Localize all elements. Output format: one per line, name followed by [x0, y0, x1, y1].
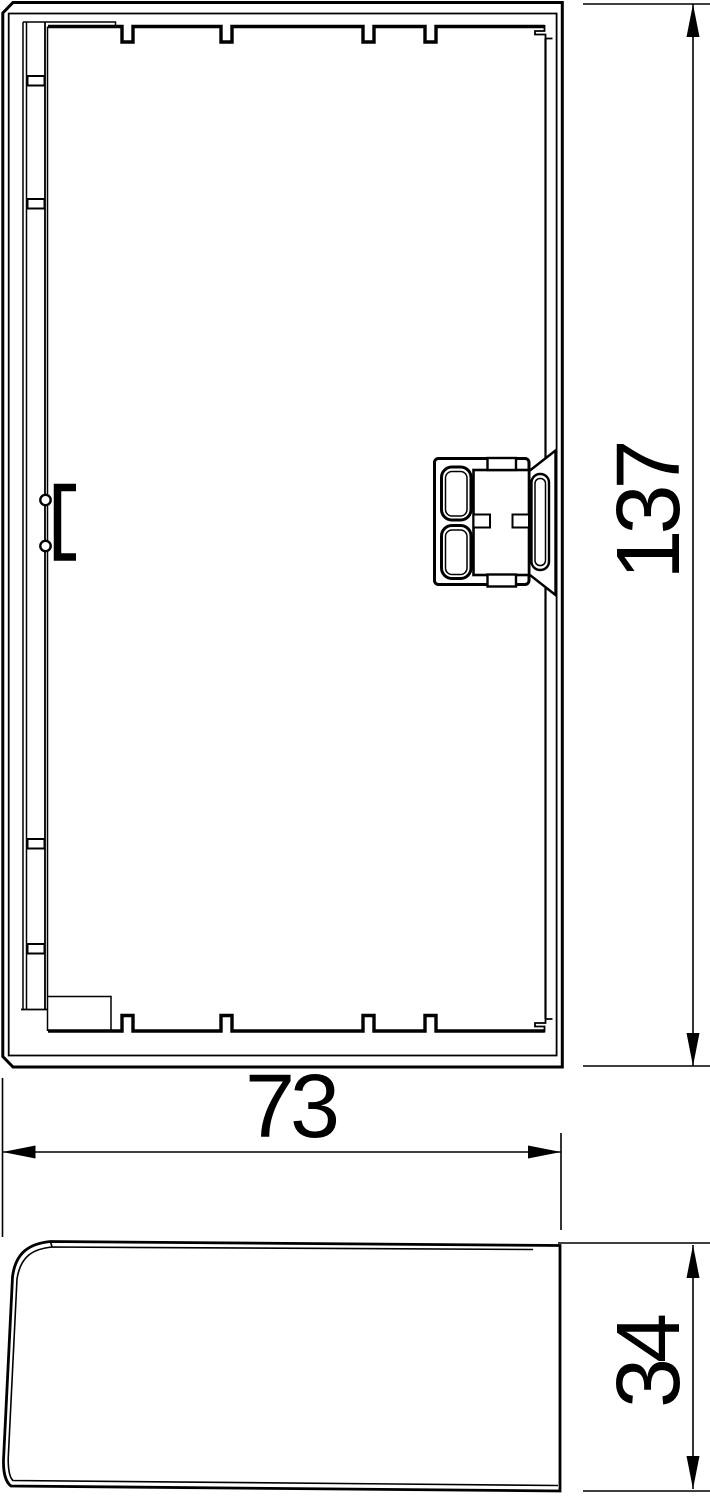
side-view	[3, 1242, 560, 1492]
drawing-canvas: 137 73 34	[0, 0, 710, 1500]
side-view-outer-contour	[3, 1242, 560, 1492]
dim-73-label: 73	[245, 1057, 337, 1157]
front-view-top-edge-notches	[48, 27, 545, 43]
panel-tick-4	[28, 944, 45, 954]
panel-tick-3	[28, 839, 45, 849]
clip-bracket	[58, 488, 77, 558]
latch-notch-right	[513, 515, 530, 528]
dim-34-arrow-top	[687, 1245, 700, 1278]
front-view	[3, 3, 563, 1068]
dim-34-label: 34	[599, 1315, 699, 1408]
dim-73-arrow-left	[3, 1146, 36, 1159]
latch-slot-outer	[532, 474, 550, 570]
latch-notch-left	[474, 515, 491, 528]
latch-tab-top	[488, 458, 517, 470]
front-view-bottom-edge-notches	[48, 1016, 545, 1032]
left-panel-bottom-edge	[48, 997, 112, 1032]
dim-34-arrow-bottom	[687, 1456, 700, 1489]
clip-pin-top	[40, 495, 50, 505]
dim-73-arrow-right	[528, 1146, 561, 1159]
dim-137-arrow-bottom	[687, 1033, 700, 1066]
panel-tick-2	[28, 199, 45, 209]
dim-137-label: 137	[599, 443, 699, 579]
right-latch	[435, 451, 556, 596]
dim-137-arrow-top	[687, 4, 700, 37]
left-panel	[21, 22, 116, 1031]
panel-tick-1	[28, 76, 45, 86]
clip-pin-bottom	[40, 541, 50, 551]
latch-tab-bottom	[488, 575, 517, 587]
dimension-drawing: 137 73 34	[0, 0, 710, 1500]
side-view-inner-lines	[8, 1247, 558, 1486]
